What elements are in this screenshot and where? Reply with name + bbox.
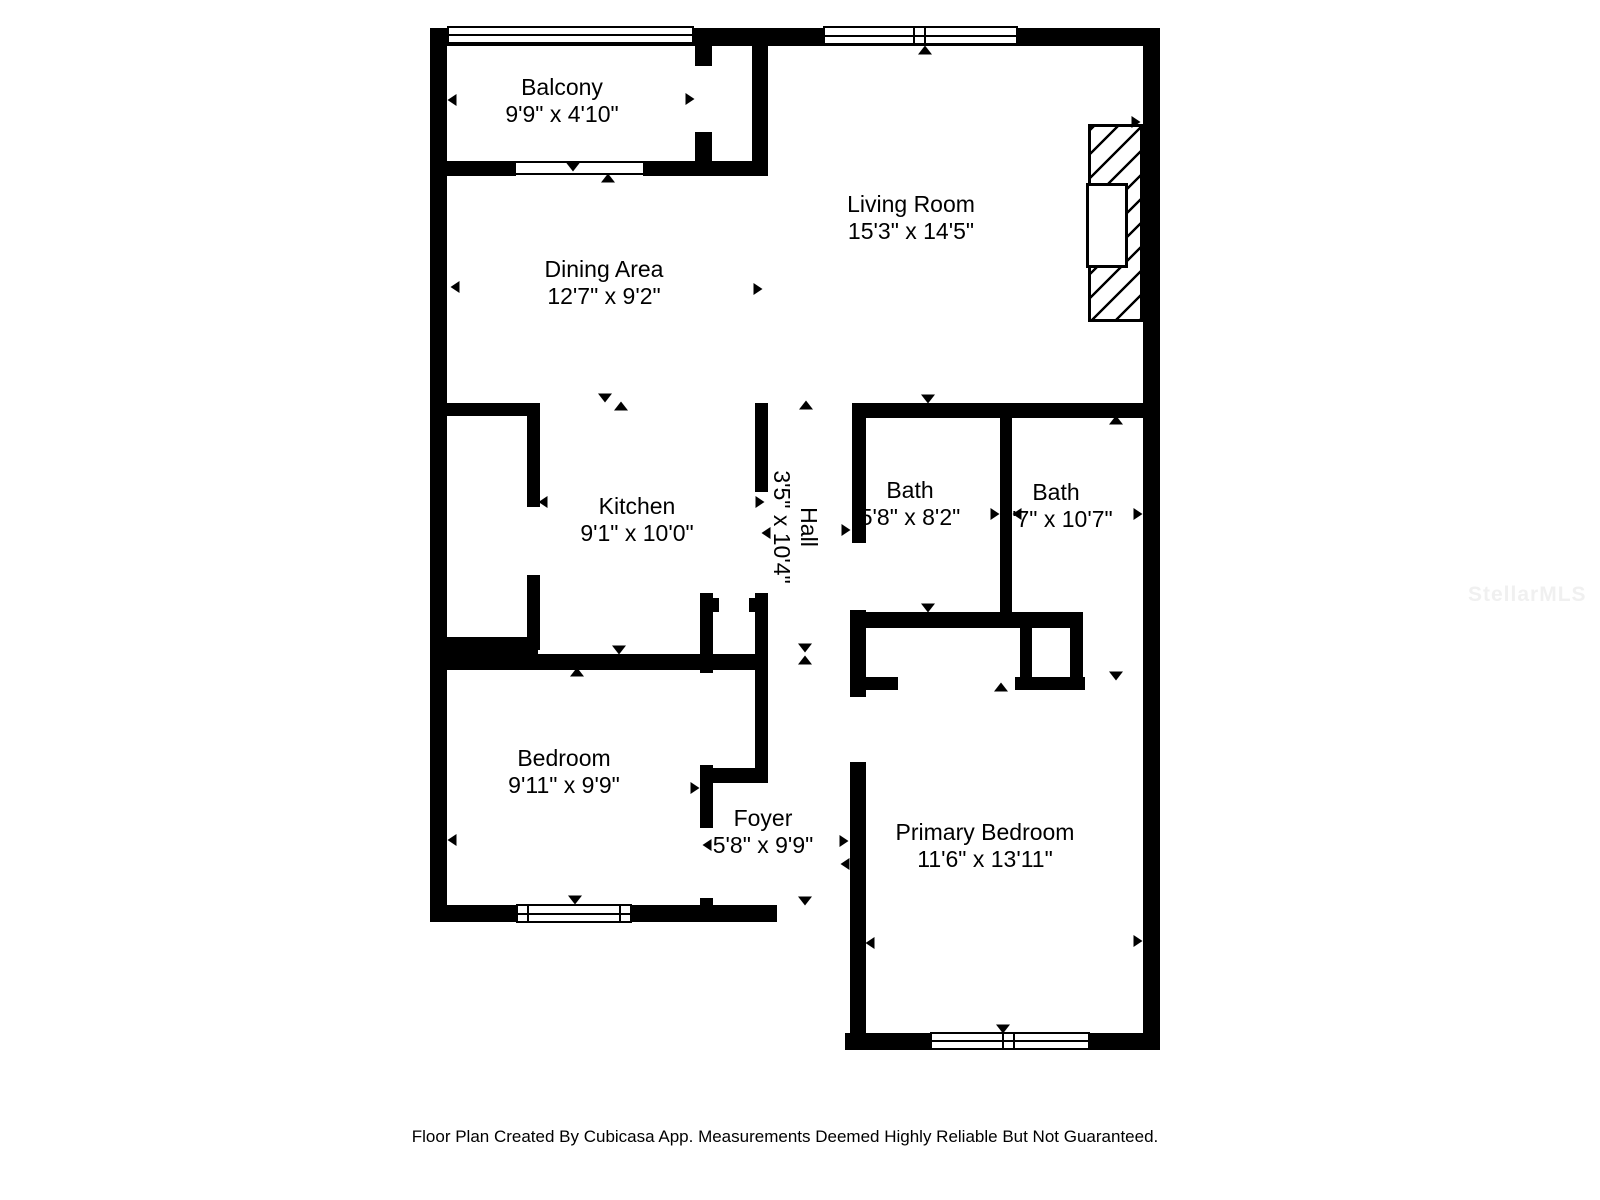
opening-marker-icon: [598, 394, 612, 403]
window-mullion: [527, 904, 529, 923]
room-dimensions: 3'5" x 10'4": [768, 470, 795, 583]
opening-marker-icon: [614, 402, 628, 411]
opening-marker-icon: [1109, 672, 1123, 681]
opening-marker-icon: [686, 93, 695, 105]
opening-marker-icon: [921, 395, 935, 404]
opening-marker-icon: [1109, 416, 1123, 425]
opening-marker-icon: [798, 644, 812, 653]
room-dimensions: 11'6" x 13'11": [896, 846, 1075, 873]
opening-marker-icon: [1132, 116, 1141, 128]
wall: [752, 42, 768, 176]
opening-marker-icon: [798, 656, 812, 665]
wall: [700, 593, 713, 673]
opening-marker-icon: [566, 163, 580, 172]
room-dimensions: 5'8" x 8'2": [860, 504, 961, 531]
opening-marker-icon: [448, 834, 457, 846]
room-name: Bath: [999, 479, 1112, 506]
opening-marker-icon: [755, 117, 764, 129]
room-name: Primary Bedroom: [896, 819, 1075, 846]
room-name: Hall: [795, 470, 822, 583]
opening-marker-icon: [756, 496, 765, 508]
opening-marker-icon: [451, 281, 460, 293]
room-name: Bath: [860, 477, 961, 504]
wall: [755, 403, 768, 492]
opening-marker-icon: [754, 283, 763, 295]
wall: [850, 677, 898, 690]
window-bedroom: [516, 904, 632, 923]
window-balcony: [447, 26, 694, 44]
wall: [852, 403, 1143, 418]
room-dimensions: 9'11" x 9'9": [508, 772, 620, 799]
room-dimensions: 9'9" x 4'10": [505, 101, 618, 128]
wall: [850, 762, 866, 1050]
opening-marker-icon: [918, 46, 932, 55]
wall: [852, 612, 1083, 628]
window-primary-bedroom: [930, 1032, 1090, 1050]
opening-marker-icon: [994, 683, 1008, 692]
room-name: Kitchen: [580, 493, 693, 520]
floor-plan: Balcony 9'9" x 4'10" Living Room 15'3" x…: [0, 0, 1600, 1200]
room-label-bath-2: Bath 5'7" x 10'7": [999, 479, 1112, 533]
room-name: Balcony: [505, 74, 618, 101]
opening-marker-icon: [842, 524, 851, 536]
opening-marker-icon: [539, 496, 548, 508]
room-label-living-room: Living Room 15'3" x 14'5": [847, 191, 975, 245]
window-mullion: [1002, 1032, 1004, 1050]
wall: [527, 403, 540, 507]
opening-marker-icon: [866, 937, 875, 949]
window-glass-line: [932, 1040, 1088, 1042]
room-dimensions: 9'1" x 10'0": [580, 520, 693, 547]
window-mullion: [913, 26, 915, 45]
window-glass-line: [825, 35, 1016, 37]
room-label-primary-bedroom: Primary Bedroom 11'6" x 13'11": [896, 819, 1075, 873]
opening-marker-icon: [691, 782, 700, 794]
opening-marker-icon: [448, 94, 457, 106]
opening-marker-icon: [991, 508, 1000, 520]
window-mullion: [1013, 1032, 1015, 1050]
opening-marker-icon: [921, 604, 935, 613]
opening-marker-icon: [840, 835, 849, 847]
opening-marker-icon: [798, 897, 812, 906]
room-label-balcony: Balcony 9'9" x 4'10": [505, 74, 618, 128]
wall: [447, 403, 538, 416]
opening-marker-icon: [703, 839, 712, 851]
opening-marker-icon: [612, 646, 626, 655]
room-dimensions: 15'3" x 14'5": [847, 218, 975, 245]
opening-marker-icon: [1134, 508, 1143, 520]
window-glass-line: [449, 34, 692, 36]
opening-marker-icon: [841, 858, 850, 870]
opening-marker-icon: [570, 668, 584, 677]
wall: [695, 46, 712, 66]
room-label-bedroom: Bedroom 9'11" x 9'9": [508, 745, 620, 799]
room-label-foyer: Foyer 5'8" x 9'9": [713, 805, 814, 859]
room-dimensions: 5'7" x 10'7": [999, 506, 1112, 533]
room-label-bath-1: Bath 5'8" x 8'2": [860, 477, 961, 531]
wall: [755, 593, 768, 783]
room-dimensions: 12'7" x 9'2": [545, 283, 664, 310]
room-name: Dining Area: [545, 256, 664, 283]
wall: [1143, 28, 1160, 1050]
room-name: Living Room: [847, 191, 975, 218]
wall: [700, 898, 713, 922]
opening-marker-icon: [1134, 935, 1143, 947]
room-label-dining-area: Dining Area 12'7" x 9'2": [545, 256, 664, 310]
opening-marker-icon: [601, 174, 615, 183]
window-glass-line: [518, 913, 630, 915]
wall: [447, 161, 516, 176]
fireplace-hearth: [1086, 183, 1128, 268]
window-living-room: [823, 26, 1018, 45]
wall: [643, 161, 752, 176]
room-name: Foyer: [713, 805, 814, 832]
window-mullion: [619, 904, 621, 923]
window-mullion: [924, 26, 926, 45]
opening-marker-icon: [799, 401, 813, 410]
wall: [749, 598, 755, 612]
room-name: Bedroom: [508, 745, 620, 772]
room-dimensions: 5'8" x 9'9": [713, 832, 814, 859]
wall: [700, 768, 768, 783]
wall: [447, 637, 538, 670]
wall: [430, 28, 447, 922]
opening-marker-icon: [996, 1025, 1010, 1034]
watermark: StellarMLS: [1468, 583, 1587, 607]
opening-marker-icon: [568, 896, 582, 905]
wall: [713, 598, 719, 612]
wall: [1015, 677, 1085, 690]
room-label-hall: Hall 3'5" x 10'4": [768, 470, 822, 583]
room-label-kitchen: Kitchen 9'1" x 10'0": [580, 493, 693, 547]
disclaimer-text: Floor Plan Created By Cubicasa App. Meas…: [412, 1127, 1159, 1147]
